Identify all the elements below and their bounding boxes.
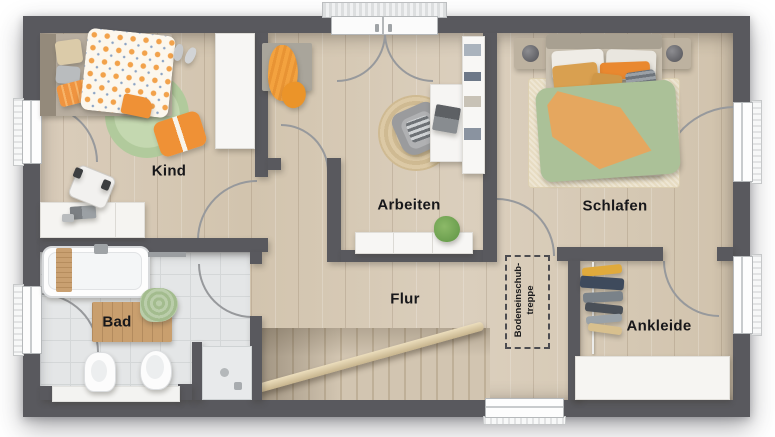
books-icon [464,72,481,81]
bidet-basin [91,360,107,382]
room-label-schlafen: Schlafen [583,198,648,215]
hanging-garment [583,291,623,303]
vanity-wall-stub-right [178,384,192,400]
towel-bar [148,252,186,257]
kind-wardrobe [215,33,255,149]
toilet-bowl [146,355,164,379]
attic-hatch-label-line2: treppe [525,285,536,314]
schlafen-duvet [535,79,681,183]
kind-bed-headboard [40,34,56,116]
wall-arbeiten-flur-stub [268,158,281,170]
bath-caddy [56,248,72,292]
balcony-door-handle-left [375,24,379,32]
room-label-bad: Bad [102,314,131,331]
vanity-wall-stub-left [40,386,52,400]
books-icon [464,44,481,56]
wall-schlafen-south-east [717,247,733,261]
wall-bad-flur-upper [250,252,262,264]
schlafen-bed-headboard [546,34,662,49]
books-icon [464,128,481,140]
kind-desk-item [62,214,74,222]
ankleide-window [733,256,753,334]
room-label-arbeiten: Arbeiten [377,197,440,214]
schlafen-window [733,102,753,182]
shower-drain-icon [220,368,229,377]
schlafen-duvet-orange-fold [535,79,681,183]
room-label-ankleide: Ankleide [627,318,692,335]
bath-faucet-icon [94,244,108,254]
plant-icon [434,216,460,242]
balcony-door-handle-right [388,24,392,32]
bad-window [22,286,42,354]
arbeiten-laptop [432,104,461,134]
ankleide-dresser [575,356,730,400]
attic-hatch-label: Bodeneinschub-treppe [513,263,537,337]
kind-pillow [54,38,83,65]
staircase [262,328,490,400]
wall-schlafen-south-west [557,247,663,261]
shower-head-icon [234,382,242,390]
attic-hatch-label-line1: Bodeneinschub- [513,263,524,337]
shower-partition-wall [192,342,202,400]
schlafen-lamp-left [522,45,539,62]
flur-window [485,398,564,418]
books-icon [464,96,481,107]
room-label-flur: Flur [390,291,420,308]
floor-plan: Bodeneinschub-treppe [0,0,775,437]
wall-arbeiten-flur-vertical [327,158,341,262]
kind-window [22,100,42,164]
balcony-double-door [331,16,438,35]
schlafen-lamp-right [666,45,683,62]
room-label-kind: Kind [152,163,187,180]
wall-arbeiten-schlafen [483,33,497,262]
